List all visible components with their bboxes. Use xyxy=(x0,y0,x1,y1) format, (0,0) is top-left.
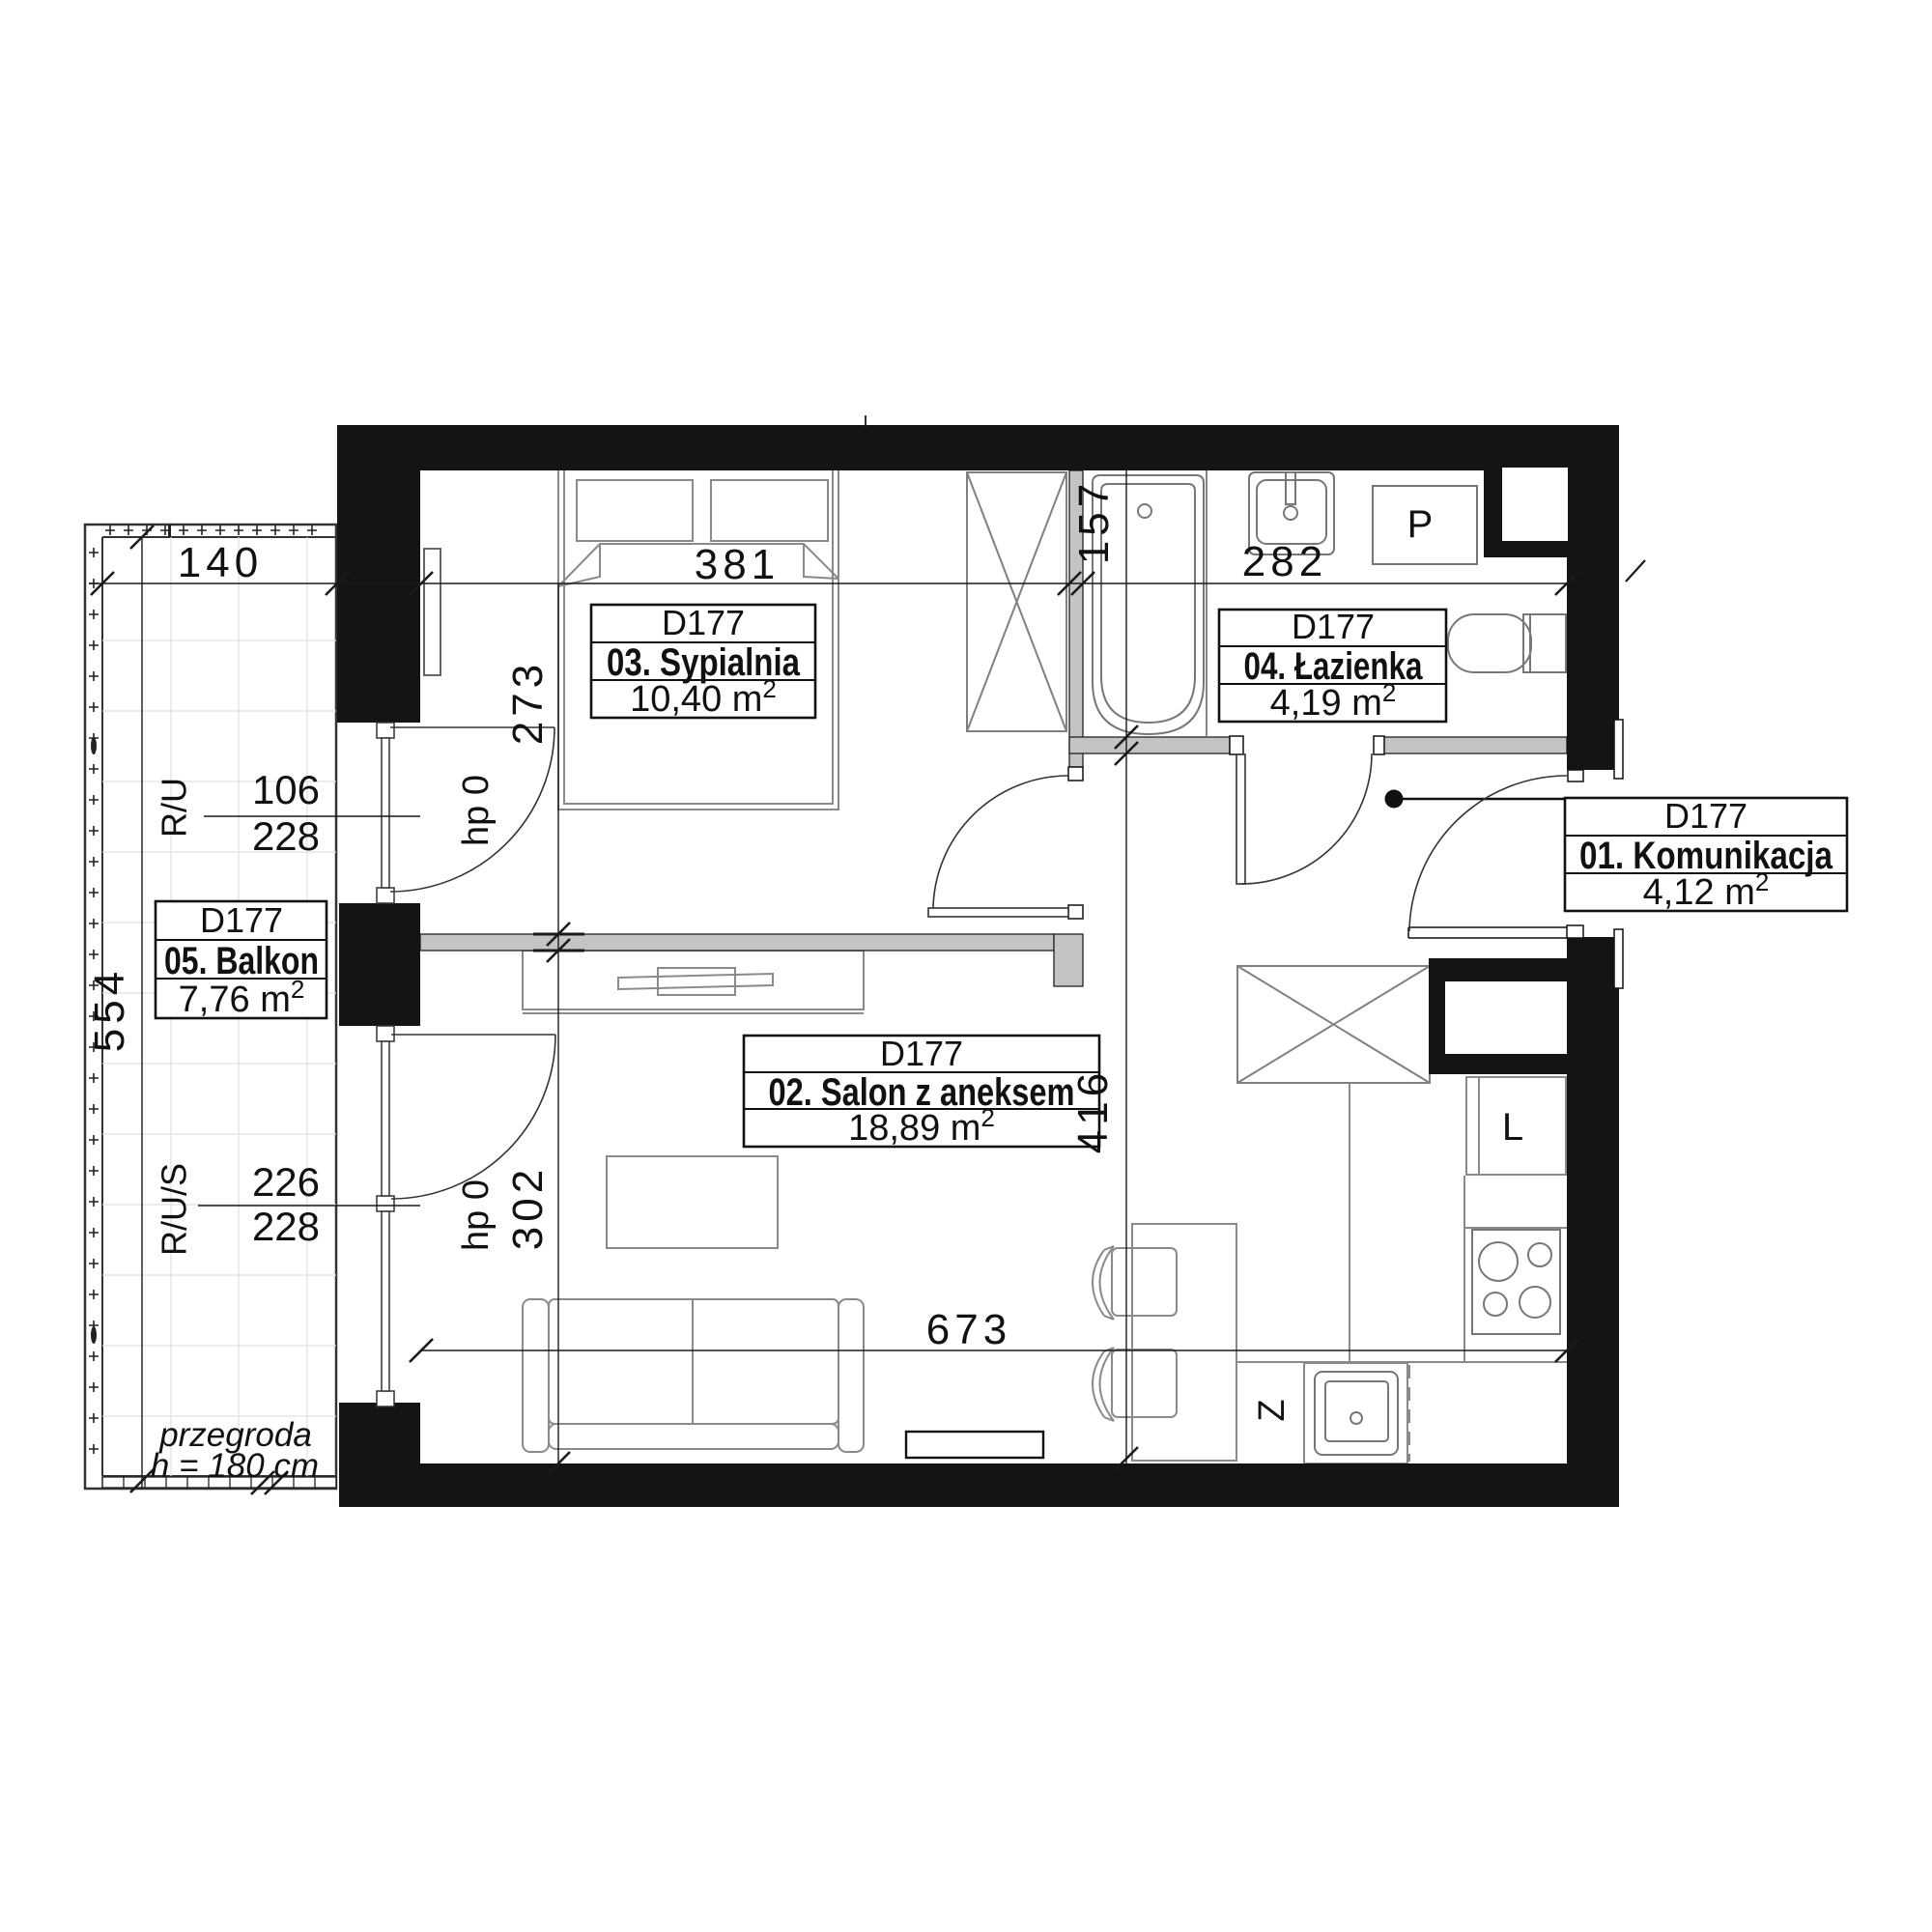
svg-text:D177: D177 xyxy=(200,900,283,940)
svg-text:Z: Z xyxy=(1252,1399,1293,1421)
svg-text:h = 180 cm: h = 180 cm xyxy=(151,1447,319,1485)
svg-text:673: 673 xyxy=(926,1306,1011,1353)
svg-text:157: 157 xyxy=(1070,479,1118,564)
svg-text:hp 0: hp 0 xyxy=(456,775,497,846)
svg-text:D177: D177 xyxy=(880,1034,963,1073)
svg-text:4,19 m2: 4,19 m2 xyxy=(1270,678,1397,724)
svg-text:273: 273 xyxy=(504,660,552,745)
svg-text:226: 226 xyxy=(252,1159,320,1205)
svg-text:L: L xyxy=(1502,1106,1523,1149)
svg-text:381: 381 xyxy=(695,541,780,588)
svg-text:7,76 m2: 7,76 m2 xyxy=(179,975,305,1020)
svg-text:4,12 m2: 4,12 m2 xyxy=(1643,867,1770,913)
svg-text:18,89 m2: 18,89 m2 xyxy=(848,1103,995,1149)
svg-text:D177: D177 xyxy=(1664,796,1747,836)
svg-text:228: 228 xyxy=(252,1204,320,1249)
svg-text:140: 140 xyxy=(178,539,263,586)
svg-text:282: 282 xyxy=(1242,538,1327,585)
svg-text:D177: D177 xyxy=(662,603,745,642)
svg-text:554: 554 xyxy=(86,967,133,1052)
svg-text:P: P xyxy=(1407,503,1434,546)
svg-text:10,40 m2: 10,40 m2 xyxy=(630,674,777,720)
svg-text:R/U/S: R/U/S xyxy=(155,1163,194,1256)
svg-text:01. Komunikacja: 01. Komunikacja xyxy=(1579,835,1833,877)
svg-text:R/U: R/U xyxy=(155,778,194,838)
svg-text:416: 416 xyxy=(1069,1068,1117,1153)
svg-text:D177: D177 xyxy=(1292,607,1375,646)
svg-text:hp 0: hp 0 xyxy=(456,1179,497,1251)
svg-text:302: 302 xyxy=(504,1165,552,1250)
svg-text:106: 106 xyxy=(252,767,320,812)
svg-text:228: 228 xyxy=(252,813,320,859)
